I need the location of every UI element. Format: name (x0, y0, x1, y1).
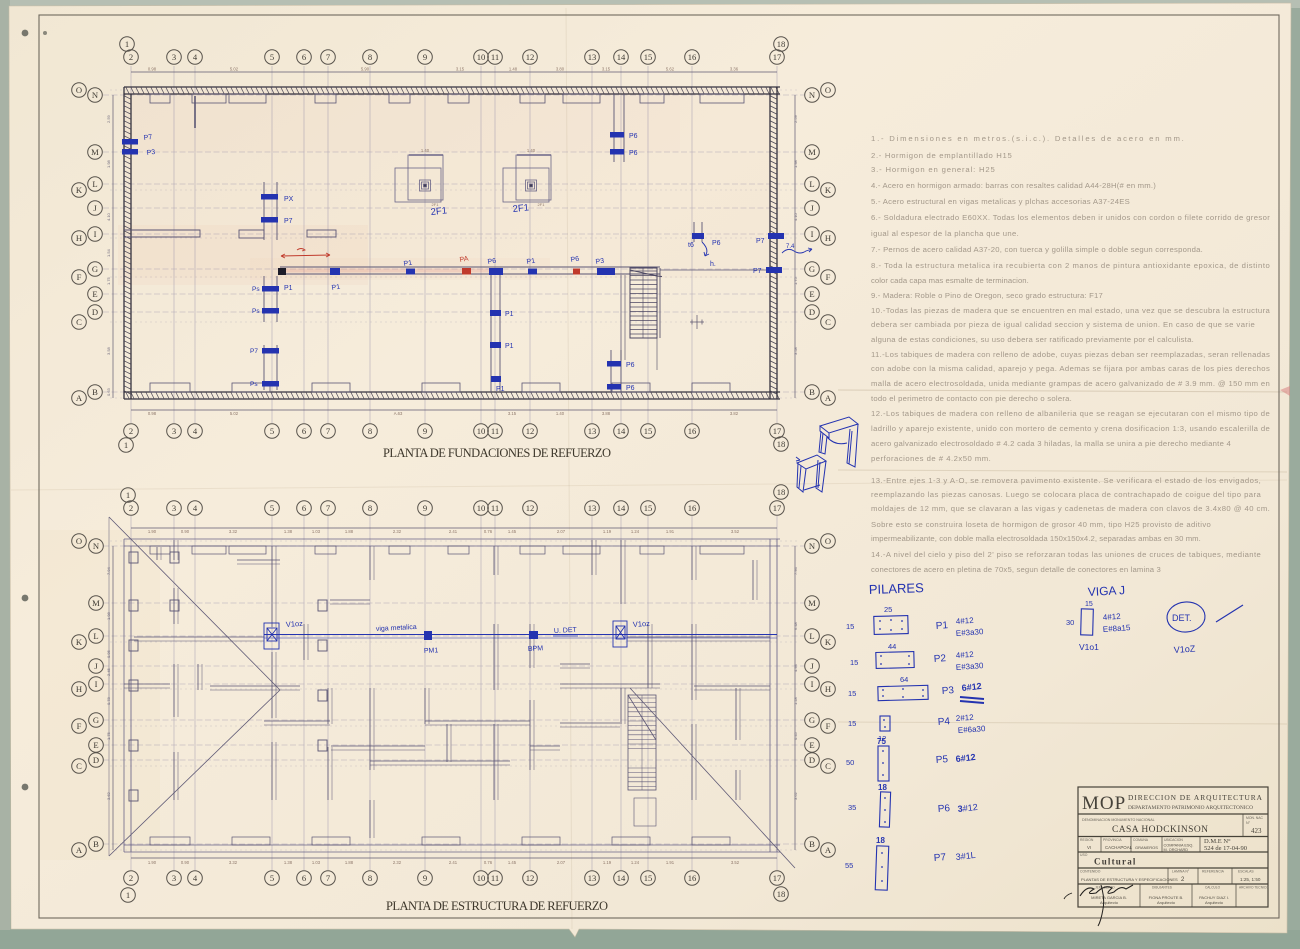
svg-text:P6: P6 (629, 150, 638, 157)
svg-text:M: M (808, 147, 816, 157)
svg-text:3.15: 3.15 (602, 67, 611, 72)
svg-text:DENOMINACION MONUMENTO NACIO: DENOMINACION MONUMENTO NACIONAL (1082, 818, 1155, 822)
svg-text:MOP: MOP (1082, 793, 1126, 814)
svg-text:UBICACION: UBICACION (1164, 838, 1183, 842)
svg-text:P2: P2 (933, 653, 946, 665)
svg-text:0.45: 0.45 (793, 731, 798, 740)
svg-text:10: 10 (477, 52, 486, 62)
svg-text:P1: P1 (505, 343, 514, 350)
svg-text:PX: PX (284, 196, 294, 203)
svg-text:VIGA J: VIGA J (1087, 583, 1125, 599)
svg-text:F: F (826, 721, 831, 731)
svg-text:2: 2 (129, 503, 133, 513)
svg-text:Arquitecto: Arquitecto (1205, 900, 1224, 905)
svg-text:H: H (76, 233, 82, 243)
svg-text:2: 2 (129, 52, 133, 62)
svg-text:VI: VI (1087, 845, 1091, 850)
svg-text:A.63: A.63 (394, 411, 403, 416)
svg-text:12: 12 (526, 426, 535, 436)
svg-text:1.75: 1.75 (106, 276, 111, 285)
svg-text:perforaciones de # 4.2x50: perforaciones de # 4.2x50 mm. (871, 454, 991, 463)
svg-text:P6: P6 (712, 240, 721, 247)
svg-text:18: 18 (777, 487, 786, 497)
svg-text:N°: N° (1246, 821, 1251, 825)
svg-text:10: 10 (477, 503, 486, 513)
svg-text:7.- Pernos de acero calida: 7.- Pernos de acero calidad A37-20, con … (871, 245, 1203, 254)
svg-text:Sobre esto se construira l: Sobre esto se construira loseta de hormi… (871, 520, 1211, 529)
svg-text:4#12: 4#12 (1103, 612, 1122, 622)
svg-text:2: 2 (129, 873, 133, 883)
svg-text:3.36: 3.36 (730, 67, 739, 72)
svg-text:2.07: 2.07 (557, 860, 566, 865)
svg-text:USO: USO (1080, 853, 1088, 857)
svg-text:2.59: 2.59 (106, 114, 111, 123)
svg-text:P3: P3 (941, 685, 954, 697)
svg-text:N: N (809, 541, 816, 551)
svg-text:6.- Soldadura electrado E60: 6.- Soldadura electrado E60XX. Todas los… (871, 213, 1270, 222)
svg-text:2.41: 2.41 (449, 529, 458, 534)
svg-text:Ps: Ps (252, 286, 260, 293)
svg-text:4.10: 4.10 (106, 212, 111, 221)
svg-text:11: 11 (491, 52, 499, 62)
svg-text:44: 44 (888, 642, 896, 651)
svg-text:4: 4 (193, 873, 198, 883)
svg-text:64: 64 (900, 675, 908, 684)
svg-text:impermeabilizante, con doble: impermeabilizante, con doble malla elect… (871, 534, 1201, 543)
svg-text:7.94: 7.94 (106, 566, 111, 575)
svg-text:2: 2 (129, 426, 133, 436)
svg-text:1.98: 1.98 (793, 159, 798, 168)
svg-text:1: 1 (124, 440, 128, 450)
svg-text:2.32: 2.32 (393, 860, 402, 865)
svg-text:2.45: 2.45 (106, 667, 111, 676)
svg-text:15: 15 (644, 873, 653, 883)
svg-text:11: 11 (491, 503, 499, 513)
svg-text:1.75: 1.75 (793, 276, 798, 285)
svg-text:15: 15 (848, 689, 856, 698)
svg-text:I: I (94, 229, 97, 239)
svg-text:5.02: 5.02 (230, 67, 239, 72)
svg-text:7: 7 (326, 426, 331, 436)
svg-text:alguna de estas condiciones: alguna de estas condiciones, su uso debe… (871, 335, 1194, 344)
svg-text:7: 7 (326, 503, 331, 513)
svg-text:9: 9 (423, 52, 427, 62)
svg-text:D.M.E N°: D.M.E N° (1204, 838, 1231, 845)
svg-text:18: 18 (777, 439, 786, 449)
svg-text:4: 4 (193, 503, 198, 513)
svg-text:K: K (76, 185, 83, 195)
svg-text:F: F (826, 272, 831, 282)
svg-text:12.-Los tabiques de madera: 12.-Los tabiques de madera con relleno d… (871, 409, 1270, 418)
svg-text:P6: P6 (487, 258, 497, 266)
svg-text:0.78: 0.78 (106, 696, 111, 705)
svg-text:B: B (809, 387, 815, 397)
svg-text:3.15: 3.15 (456, 67, 465, 72)
svg-text:5.02: 5.02 (230, 411, 239, 416)
svg-text:0.76: 0.76 (484, 860, 493, 865)
svg-text:6: 6 (302, 873, 307, 883)
svg-text:moldajes de 12 mm, que se: moldajes de 12 mm, que se clavaran a las… (871, 504, 1270, 513)
svg-text:C: C (825, 761, 831, 771)
svg-text:6.48: 6.48 (793, 621, 798, 630)
svg-text:15: 15 (1085, 601, 1093, 608)
svg-text:V1oZ: V1oZ (1173, 643, 1196, 655)
svg-text:1: 1 (126, 490, 130, 500)
svg-text:Cultural: Cultural (1094, 857, 1137, 867)
svg-text:4.93: 4.93 (793, 663, 798, 672)
svg-text:E: E (809, 740, 814, 750)
svg-text:CALCULO: CALCULO (1205, 886, 1221, 890)
svg-text:P4: P4 (937, 716, 950, 728)
svg-text:P7: P7 (143, 134, 153, 142)
svg-text:8: 8 (368, 873, 372, 883)
svg-text:DET.: DET. (1172, 613, 1192, 623)
svg-text:8: 8 (368, 52, 372, 62)
svg-text:DIRECCION DE ARQUITECTURA: DIRECCION DE ARQUITECTURA (1128, 793, 1263, 802)
svg-text:O: O (76, 85, 82, 95)
svg-text:REFERENCIA: REFERENCIA (1202, 870, 1225, 874)
svg-text:0.90: 0.90 (181, 529, 190, 534)
svg-text:1.- Dimensiones en metros.(: 1.- Dimensiones en metros.(s.i.c.). Deta… (871, 134, 1184, 143)
svg-text:3: 3 (172, 426, 176, 436)
svg-text:3.- Hormigon en general: H: 3.- Hormigon en general: H25 (871, 165, 995, 174)
svg-text:O: O (825, 536, 831, 546)
svg-text:1.98: 1.98 (106, 611, 111, 620)
svg-text:A: A (825, 393, 832, 403)
svg-text:1.48: 1.48 (509, 67, 518, 72)
svg-text:2.- Hormigon de emplantilla: 2.- Hormigon de emplantillado H15 (871, 151, 1012, 160)
svg-text:16: 16 (688, 426, 697, 436)
svg-text:7.94: 7.94 (793, 566, 798, 575)
svg-text:H: H (76, 684, 82, 694)
svg-text:P1: P1 (331, 284, 341, 292)
svg-text:30: 30 (1066, 618, 1074, 627)
svg-text:color cada capa mas esmalt: color cada capa mas esmalte de terminaci… (871, 276, 1029, 285)
svg-text:G: G (92, 264, 98, 274)
svg-text:1.19: 1.19 (603, 529, 612, 534)
svg-text:P1: P1 (284, 285, 293, 292)
svg-text:3.58: 3.58 (793, 346, 798, 355)
svg-text:PLANTA DE FUNDACIONES DE R: PLANTA DE FUNDACIONES DE REFUERZO (383, 446, 611, 460)
svg-text:V1oz: V1oz (633, 619, 651, 629)
svg-text:P3: P3 (146, 149, 156, 157)
svg-text:C: C (76, 317, 82, 327)
svg-text:14.-A nivel del cielo y p: 14.-A nivel del cielo y piso del 2' piso… (871, 550, 1261, 559)
svg-text:K: K (76, 637, 83, 647)
svg-text:13: 13 (588, 52, 597, 62)
svg-text:E: E (93, 740, 98, 750)
svg-text:MON. NAC: MON. NAC (1246, 816, 1264, 820)
svg-text:1.45: 1.45 (508, 860, 517, 865)
svg-text:16: 16 (688, 873, 697, 883)
svg-text:GRANEROS: GRANEROS (1135, 845, 1158, 850)
svg-text:8.- Toda la estructura met: 8.- Toda la estructura metalica ira recu… (871, 261, 1270, 270)
svg-text:15: 15 (848, 719, 856, 728)
svg-text:N: N (93, 541, 100, 551)
svg-text:18: 18 (777, 39, 786, 49)
svg-text:P1: P1 (505, 311, 514, 318)
svg-text:U. DET: U. DET (554, 627, 578, 635)
svg-text:1.03: 1.03 (312, 529, 321, 534)
svg-text:A: A (76, 845, 83, 855)
svg-text:15: 15 (644, 52, 653, 62)
svg-text:7.4: 7.4 (786, 244, 795, 250)
svg-text:1: 1 (126, 890, 130, 900)
svg-text:F: F (77, 721, 82, 731)
svg-text:1.38: 1.38 (284, 529, 293, 534)
svg-text:0.76: 0.76 (484, 529, 493, 534)
svg-text:16: 16 (688, 52, 697, 62)
svg-text:10: 10 (477, 426, 486, 436)
svg-text:9: 9 (423, 503, 427, 513)
svg-text:2.07: 2.07 (557, 529, 566, 534)
svg-text:COMUNA: COMUNA (1133, 838, 1149, 842)
svg-text:6#12: 6#12 (955, 752, 976, 764)
svg-text:PILARES: PILARES (869, 580, 925, 597)
svg-text:3.62: 3.62 (106, 791, 111, 800)
svg-text:BPM: BPM (528, 645, 544, 653)
svg-text:D: D (809, 307, 815, 317)
svg-text:debera ser cambiada por pi: debera ser cambiada por pieza de igual c… (871, 320, 1255, 329)
svg-text:3.88: 3.88 (602, 411, 611, 416)
svg-text:con adobe con la misma ca: con adobe con la misma calidad, aparejo … (871, 364, 1270, 373)
svg-text:0.98: 0.98 (148, 67, 157, 72)
svg-text:8: 8 (368, 426, 372, 436)
svg-text:0.95: 0.95 (106, 649, 111, 658)
svg-text:1.45: 1.45 (508, 529, 517, 534)
svg-text:6: 6 (302, 52, 307, 62)
svg-text:1.40: 1.40 (421, 148, 430, 153)
svg-text:D: D (809, 755, 815, 765)
svg-text:8: 8 (368, 503, 372, 513)
svg-text:11.-Los tabiques de madera: 11.-Los tabiques de madera con relleno d… (871, 350, 1270, 359)
svg-text:5.90: 5.90 (361, 67, 370, 72)
svg-text:K: K (825, 637, 832, 647)
svg-text:17: 17 (773, 503, 782, 513)
svg-text:B: B (92, 387, 98, 397)
svg-text:L: L (809, 179, 814, 189)
svg-text:14: 14 (617, 873, 626, 883)
svg-text:conectores de acero en ple: conectores de acero en pletina de 70x5, … (871, 565, 1161, 574)
svg-text:L: L (809, 631, 814, 641)
svg-text:13.-Entre ejes 1-3 y A-O,: 13.-Entre ejes 1-3 y A-O, se removera pa… (871, 476, 1261, 485)
svg-text:6: 6 (302, 503, 307, 513)
svg-text:1.91: 1.91 (666, 529, 675, 534)
svg-text:COMPANIA ESQ.: COMPANIA ESQ. (1164, 844, 1194, 848)
svg-text:14: 14 (617, 52, 626, 62)
svg-text:P7: P7 (756, 238, 765, 245)
svg-text:0.63: 0.63 (106, 387, 111, 396)
svg-text:3.32: 3.32 (229, 860, 238, 865)
svg-text:1.03: 1.03 (312, 860, 321, 865)
svg-text:P7: P7 (933, 852, 946, 864)
svg-text:P7: P7 (284, 218, 293, 225)
svg-text:h.: h. (710, 261, 716, 268)
svg-text:Ps: Ps (250, 381, 258, 388)
svg-text:igual al espesor de la pl: igual al espesor de la plancha que une. (871, 229, 1019, 238)
svg-text:3: 3 (172, 52, 176, 62)
svg-text:CACHAPOAL: CACHAPOAL (1105, 845, 1133, 850)
svg-text:E: E (809, 289, 814, 299)
svg-text:4.10: 4.10 (793, 212, 798, 221)
svg-text:15: 15 (846, 622, 854, 631)
svg-text:P1: P1 (403, 260, 413, 268)
svg-text:524 de 17-04-90: 524 de 17-04-90 (1204, 845, 1247, 852)
svg-text:P6: P6 (626, 362, 635, 369)
svg-text:4#12: 4#12 (956, 616, 975, 626)
svg-text:15: 15 (850, 658, 858, 667)
svg-text:1.90: 1.90 (148, 529, 157, 534)
svg-text:M: M (808, 598, 816, 608)
svg-text:PLANTA DE ESTRUCTURA DE RE: PLANTA DE ESTRUCTURA DE REFUERZO (386, 899, 608, 913)
svg-text:Ps: Ps (252, 308, 260, 315)
svg-text:3.15: 3.15 (508, 411, 517, 416)
svg-text:1.24: 1.24 (631, 529, 640, 534)
svg-text:14: 14 (617, 426, 626, 436)
svg-text:5.- Acero estructural en v: 5.- Acero estructural en vigas metalicas… (871, 197, 1130, 206)
svg-text:1.40: 1.40 (556, 411, 565, 416)
svg-text:3#1L: 3#1L (955, 850, 976, 862)
svg-text:1.38: 1.38 (284, 860, 293, 865)
svg-text:17: 17 (773, 873, 782, 883)
svg-text:2F1: 2F1 (512, 202, 529, 215)
svg-text:1.88: 1.88 (345, 860, 354, 865)
svg-text:6#12: 6#12 (961, 681, 982, 693)
svg-text:I: I (95, 679, 98, 689)
svg-text:P6: P6 (629, 133, 638, 140)
svg-text:25: 25 (884, 605, 892, 614)
svg-text:G: G (809, 264, 815, 274)
svg-text:REGION: REGION (1080, 838, 1094, 842)
svg-text:P6: P6 (937, 803, 950, 815)
svg-text:H: H (825, 684, 831, 694)
svg-text:13: 13 (588, 503, 597, 513)
svg-text:2.32: 2.32 (393, 529, 402, 534)
svg-text:Arquitecto: Arquitecto (1100, 900, 1119, 905)
svg-text:3.32: 3.32 (229, 529, 238, 534)
svg-text:B: B (809, 839, 815, 849)
svg-text:3.52: 3.52 (731, 529, 740, 534)
svg-text:5.62: 5.62 (666, 67, 675, 72)
svg-text:F: F (77, 272, 82, 282)
svg-text:V1o1: V1o1 (1079, 642, 1099, 652)
svg-text:M: M (92, 598, 100, 608)
svg-text:1: 1 (125, 39, 129, 49)
svg-text:reemplazando las piezas can: reemplazando las piezas canosas. Luego s… (871, 490, 1262, 499)
svg-text:A: A (825, 845, 832, 855)
svg-text:G: G (809, 715, 815, 725)
svg-text:P7: P7 (753, 268, 762, 275)
svg-text:12: 12 (526, 52, 535, 62)
svg-text:17: 17 (773, 426, 782, 436)
svg-text:C: C (825, 317, 831, 327)
svg-text:35: 35 (848, 803, 856, 812)
svg-text:P6: P6 (570, 256, 580, 264)
svg-text:14: 14 (617, 503, 626, 513)
svg-text:0.98: 0.98 (148, 411, 157, 416)
svg-text:H: H (825, 233, 831, 243)
svg-text:11: 11 (491, 426, 499, 436)
svg-text:PROVINCIA: PROVINCIA (1103, 838, 1122, 842)
svg-text:2.41: 2.41 (449, 860, 458, 865)
svg-text:N: N (92, 90, 99, 100)
svg-text:18: 18 (878, 783, 887, 792)
svg-text:12: 12 (526, 873, 535, 883)
svg-text:2.59: 2.59 (793, 114, 798, 123)
svg-text:5: 5 (270, 503, 274, 513)
svg-text:1.91: 1.91 (666, 860, 675, 865)
svg-text:K: K (825, 185, 832, 195)
svg-text:3: 3 (172, 873, 176, 883)
svg-text:DIBUJANTES: DIBUJANTES (1152, 886, 1172, 890)
svg-text:4: 4 (193, 426, 198, 436)
svg-text:acero galvanizado electrosol: acero galvanizado electrosoldado # 4.2 c… (871, 439, 1232, 448)
svg-text:3#12: 3#12 (957, 802, 978, 814)
svg-text:18: 18 (777, 889, 786, 899)
svg-text:6: 6 (302, 426, 307, 436)
svg-text:O: O (76, 536, 82, 546)
svg-text:0.90: 0.90 (181, 860, 190, 865)
svg-text:todo el perimetro de conta: todo el perimetro de contacto con pie de… (871, 394, 1072, 403)
svg-text:M. ORCHARD: M. ORCHARD (1164, 848, 1189, 852)
svg-text:18: 18 (876, 836, 885, 845)
svg-text:Arquitecto: Arquitecto (1157, 900, 1176, 905)
svg-text:5: 5 (270, 52, 274, 62)
svg-text:P5: P5 (935, 754, 948, 766)
svg-text:3.58: 3.58 (106, 346, 111, 355)
svg-text:CASA HODCKINSON: CASA HODCKINSON (1112, 825, 1208, 835)
svg-text:9: 9 (423, 873, 427, 883)
svg-text:PLANTAS DE ESTRUCTURA Y ESPECI: PLANTAS DE ESTRUCTURA Y ESPECIFICACIONES (1081, 877, 1178, 882)
svg-text:13: 13 (588, 426, 597, 436)
svg-text:1.90: 1.90 (148, 860, 157, 865)
svg-text:P1: P1 (935, 620, 948, 632)
svg-text:9: 9 (423, 426, 427, 436)
svg-text:CONTENIDO: CONTENIDO (1080, 870, 1101, 874)
svg-text:55: 55 (845, 861, 853, 870)
svg-text:10.-Todas las piezas de ma: 10.-Todas las piezas de madera que se en… (871, 306, 1271, 315)
svg-text:7: 7 (326, 52, 331, 62)
svg-text:LAMINA N°: LAMINA N° (1172, 870, 1190, 874)
svg-text:2F1: 2F1 (538, 202, 546, 207)
svg-text:4.- Acero en hormigon arma: 4.- Acero en hormigon armado: barras con… (871, 181, 1156, 190)
svg-text:1.88: 1.88 (345, 529, 354, 534)
svg-text:50: 50 (846, 758, 854, 767)
svg-text:3.62: 3.62 (793, 791, 798, 800)
svg-text:D: D (93, 755, 99, 765)
svg-text:16: 16 (688, 503, 697, 513)
svg-text:ARCHIVO TECNICO: ARCHIVO TECNICO (1239, 886, 1269, 890)
svg-text:11: 11 (491, 873, 499, 883)
svg-text:15: 15 (644, 503, 653, 513)
svg-text:10: 10 (477, 873, 486, 883)
svg-text:2F1: 2F1 (430, 205, 447, 218)
svg-text:1.24: 1.24 (631, 860, 640, 865)
svg-text:15: 15 (644, 426, 653, 436)
svg-text:O: O (825, 85, 831, 95)
svg-text:L: L (93, 631, 98, 641)
svg-text:A: A (76, 393, 83, 403)
svg-text:PM1: PM1 (424, 647, 439, 655)
svg-text:t6: t6 (688, 242, 694, 249)
svg-text:1.54: 1.54 (106, 248, 111, 257)
svg-text:P1: P1 (496, 386, 505, 393)
svg-text:G: G (93, 715, 99, 725)
svg-text:D: D (92, 307, 98, 317)
svg-text:ladrillo y aparejo existent: ladrillo y aparejo existente, unido con … (871, 424, 1270, 433)
svg-text:1.28: 1.28 (793, 696, 798, 705)
svg-text:L: L (92, 179, 97, 189)
